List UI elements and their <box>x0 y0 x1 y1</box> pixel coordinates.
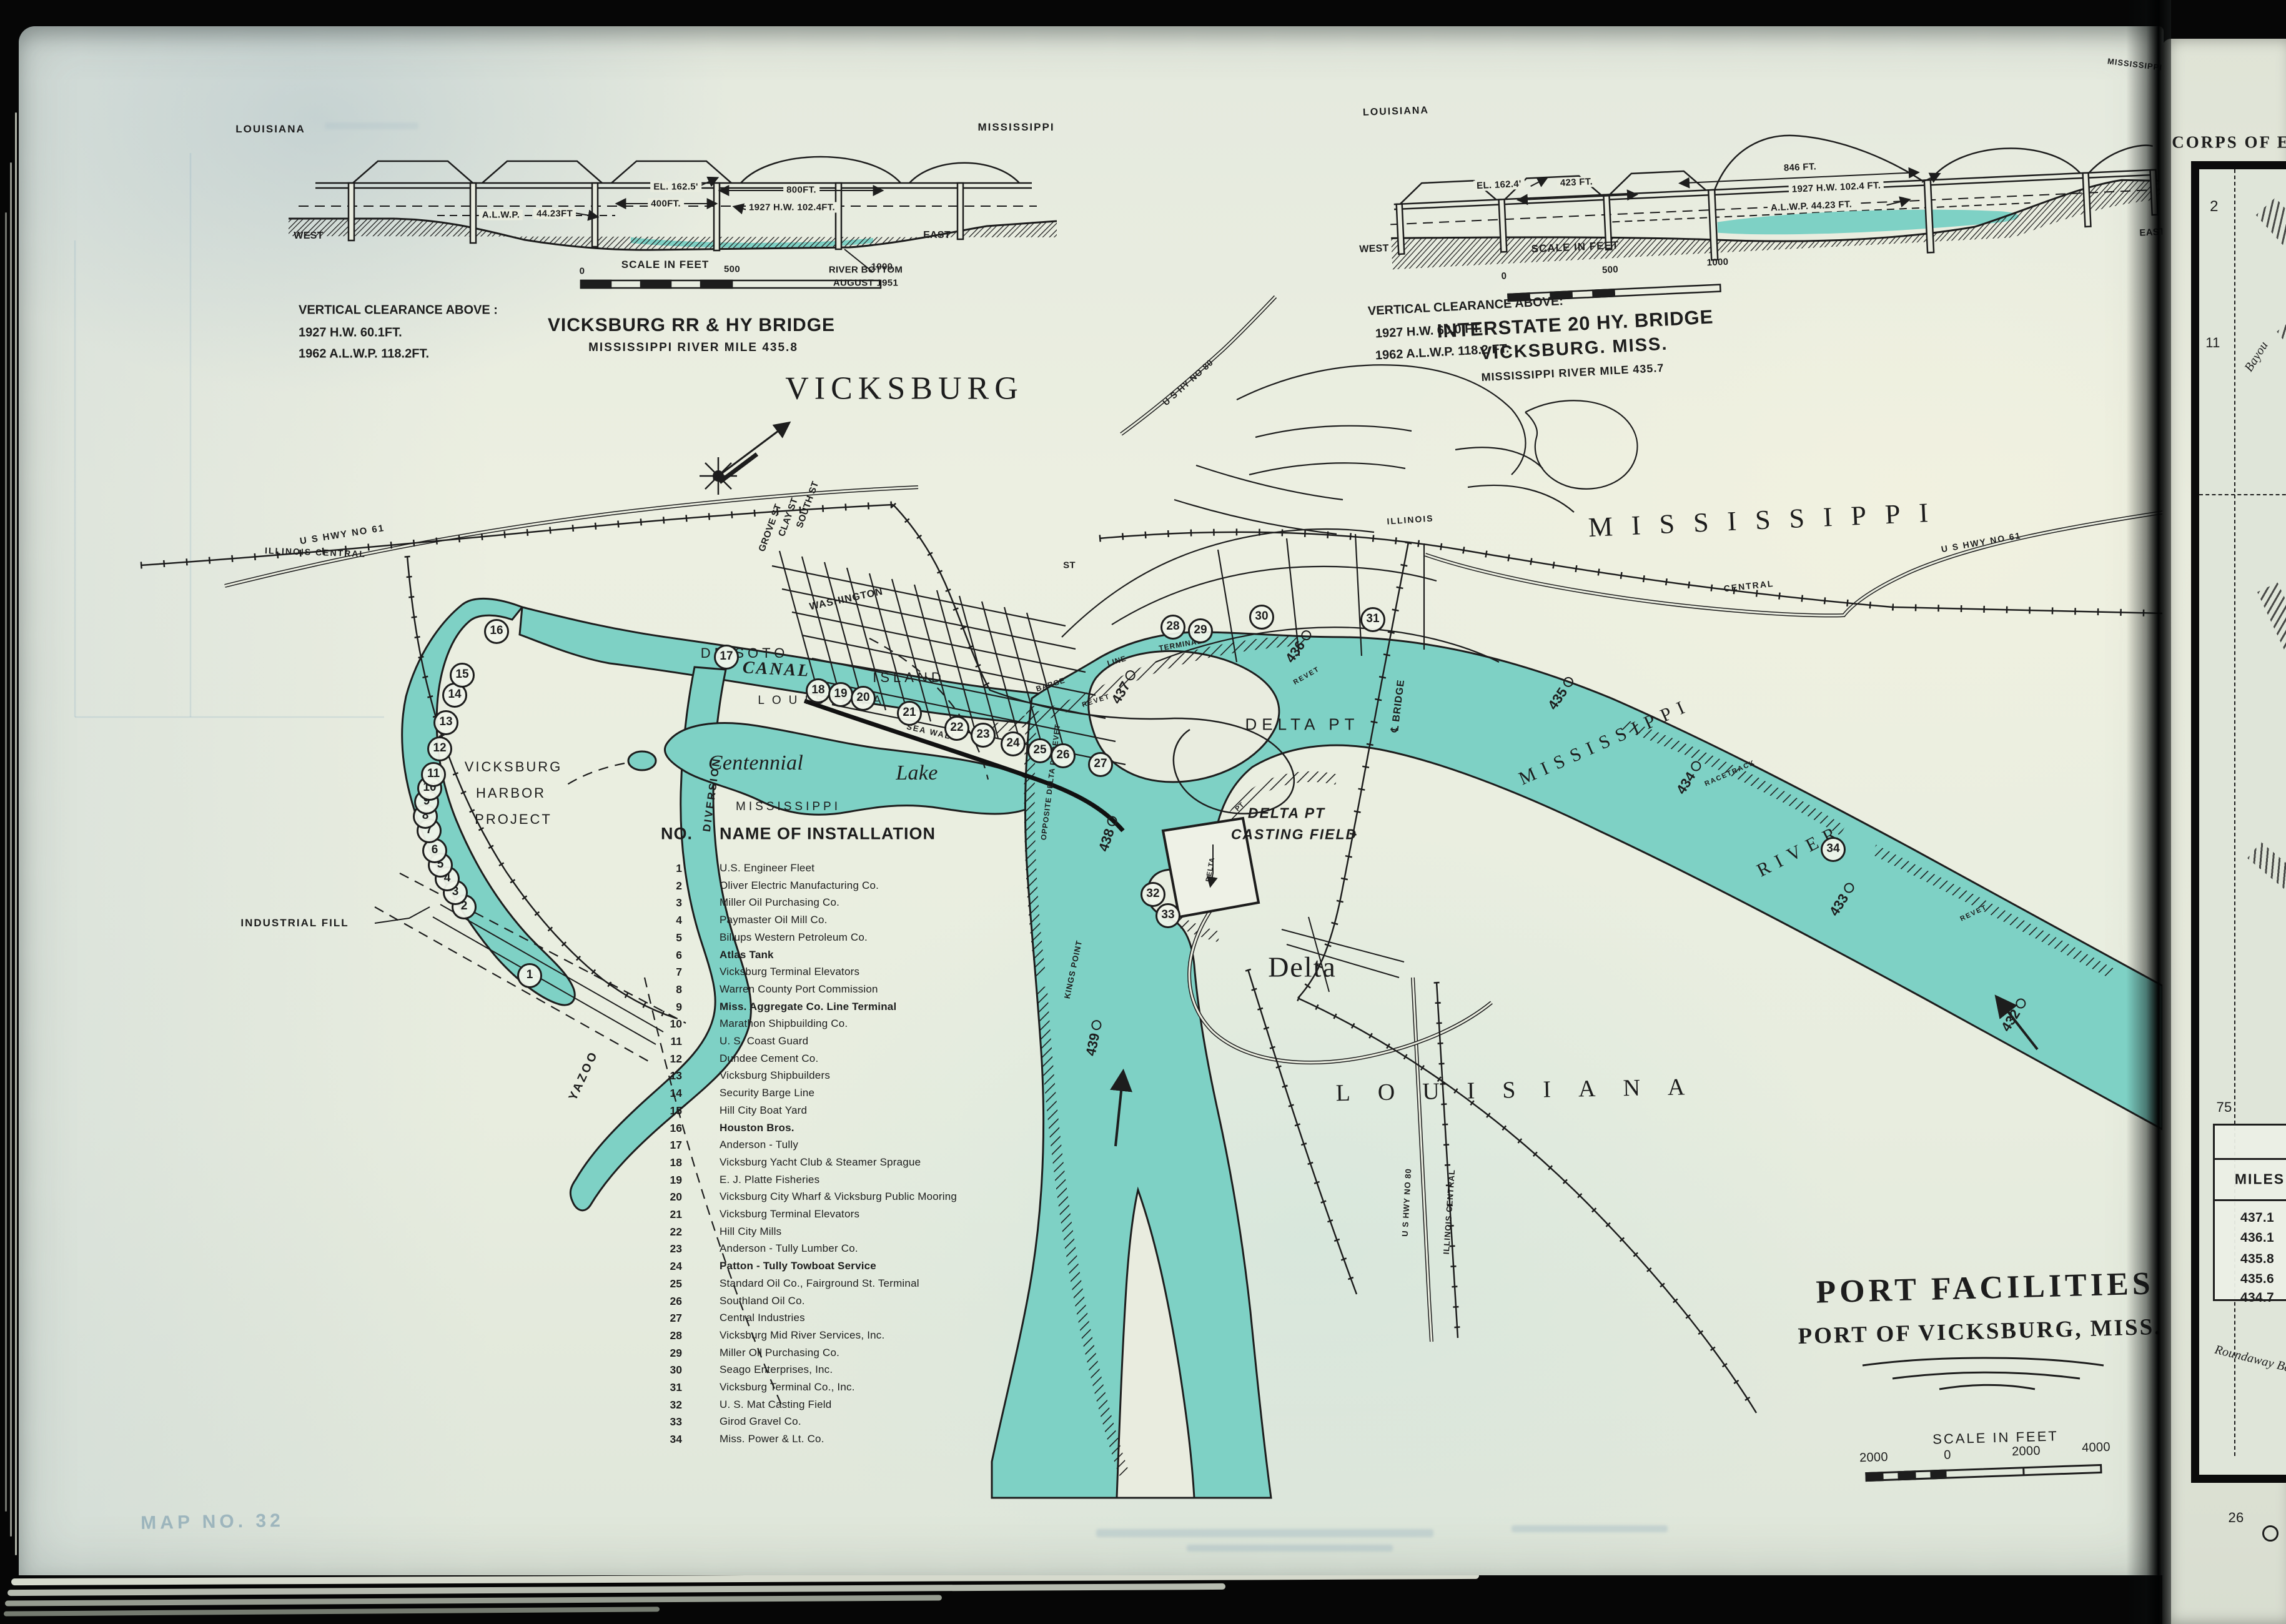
installation-name: Marathon Shipbuilding Co. <box>720 1017 848 1030</box>
scale-500-right: 500 <box>1602 264 1619 275</box>
installation-row-26: 26Southland Oil Co. <box>650 1295 1212 1311</box>
installation-marker-25: 25 <box>1027 738 1052 763</box>
installation-name: Vicksburg Mid River Services, Inc. <box>720 1329 884 1342</box>
installation-marker-30: 30 <box>1249 605 1274 630</box>
installation-marker-34: 34 <box>1821 837 1846 862</box>
installation-row-6: 6Atlas Tank <box>650 949 1212 965</box>
page-stack-edge <box>15 112 17 1555</box>
installation-row-25: 25Standard Oil Co., Fairground St. Termi… <box>650 1277 1212 1294</box>
installation-row-31: 31Vicksburg Terminal Co., Inc. <box>650 1381 1212 1397</box>
installation-name: Seago Enterprises, Inc. <box>720 1364 833 1376</box>
installation-row-34: 34Miss. Power & Lt. Co. <box>650 1433 1212 1449</box>
installation-marker-24: 24 <box>1001 731 1026 756</box>
ghost-text-bar <box>325 122 418 129</box>
installation-row-28: 28Vicksburg Mid River Services, Inc. <box>650 1329 1212 1345</box>
river-hatch <box>2256 197 2286 317</box>
page-gutter-shadow <box>2126 0 2171 1624</box>
installation-number: 25 <box>650 1277 682 1290</box>
installation-row-3: 3Miller Oil Purchasing Co. <box>650 896 1212 913</box>
installation-name: Miller Oil Purchasing Co. <box>720 1347 839 1359</box>
state-label-mississippi-left: MISSISSIPPI <box>977 121 1054 134</box>
installation-number: 14 <box>650 1087 682 1100</box>
scale-title-left: SCALE IN FEET <box>621 259 710 271</box>
installation-row-33: 33Girod Gravel Co. <box>650 1415 1212 1432</box>
miles-table-header: MILES <box>2235 1171 2285 1188</box>
installation-row-22: 22Hill City Mills <box>650 1225 1212 1242</box>
installation-row-2: 2Oliver Electric Manufacturing Co. <box>650 879 1212 896</box>
installation-number: 18 <box>650 1156 682 1169</box>
installation-row-8: 8Warren County Port Commission <box>650 983 1212 999</box>
installation-name: U. S. Coast Guard <box>720 1035 808 1047</box>
grid-number-11: 11 <box>2205 335 2220 351</box>
rr-bridge-subtitle: MISSISSIPPI RIVER MILE 435.8 <box>588 341 798 355</box>
clearance-title-left: VERTICAL CLEARANCE ABOVE : <box>299 304 498 318</box>
river-hatch <box>2277 316 2286 460</box>
installation-name: Miss. Aggregate Co. Line Terminal <box>720 1001 896 1013</box>
installation-number: 15 <box>650 1104 682 1117</box>
mississippi-small-label: MISSISSIPPI <box>736 800 841 814</box>
installation-marker-12: 12 <box>427 736 452 761</box>
installation-row-20: 20Vicksburg City Wharf & Vicksburg Publi… <box>650 1191 1212 1207</box>
installation-marker-23: 23 <box>971 723 996 748</box>
span-846-label: 846 FT. <box>1781 161 1820 174</box>
city-sprawl <box>1062 365 1637 662</box>
installation-row-24: 24Patton - Tully Towboat Service <box>650 1260 1212 1276</box>
installation-number: 21 <box>650 1208 682 1221</box>
casting-field-label-2: CASTING FIELD <box>1231 826 1357 843</box>
installation-number: 20 <box>650 1191 682 1204</box>
installation-marker-26: 26 <box>1051 743 1076 768</box>
installation-marker-22: 22 <box>944 716 969 741</box>
industrial-fill-label: INDUSTRIAL FILL <box>240 917 349 929</box>
installation-row-11: 11U. S. Coast Guard <box>650 1035 1212 1051</box>
next-page-map-frame: 2 1 11 Bayou 75 MILES 437.1 436.1 435.8 … <box>2191 161 2286 1483</box>
compass-west-right: WEST <box>1359 243 1389 255</box>
installation-marker-32: 32 <box>1141 882 1165 907</box>
alwp-label: A.L.W.P. <box>479 210 523 220</box>
scale-0-right: 0 <box>1501 270 1507 281</box>
tb-scale-2000l: 2000 <box>1859 1450 1888 1466</box>
harbor-project-label-3: PROJECT <box>475 811 552 828</box>
installation-name: Miss. Power & Lt. Co. <box>720 1433 824 1445</box>
grid-number-2: 2 <box>2210 198 2219 215</box>
clearance-1927-left: 1927 H.W. 60.1FT. <box>299 326 402 340</box>
next-page-fragment: CORPS OF E 2 1 11 Bayou 75 MILES 437.1 <box>2162 39 2286 1624</box>
installation-number: 17 <box>650 1139 682 1152</box>
installation-number: 23 <box>650 1242 682 1255</box>
installation-number: 6 <box>650 949 682 962</box>
harbor-project-label-2: HARBOR <box>476 785 546 801</box>
ghost-map-number: MAP NO. 32 <box>141 1510 284 1534</box>
clearance-1962-left: 1962 A.L.W.P. 118.2FT. <box>299 347 429 362</box>
installation-marker-28: 28 <box>1160 615 1185 640</box>
installation-number: 4 <box>650 914 682 927</box>
st-label: ST <box>1063 560 1076 571</box>
installation-number: 2 <box>650 879 682 893</box>
island-label: ISLAND <box>873 670 944 686</box>
compass-west-left: WEST <box>294 230 323 242</box>
installation-row-13: 13Vicksburg Shipbuilders <box>650 1069 1212 1086</box>
installation-name: Patton - Tully Towboat Service <box>720 1260 876 1272</box>
highwater-label: 1927 H.W. 102.4FT. <box>746 202 838 213</box>
installation-name: Anderson - Tully <box>720 1139 798 1151</box>
delta-pt-label: DELTA PT <box>1245 715 1360 735</box>
casting-field-label-1: DELTA PT <box>1248 805 1325 822</box>
delta-town-label: Delta <box>1268 951 1337 984</box>
page-stack-edge <box>10 162 12 1537</box>
span-400-label: 400FT. <box>648 199 684 209</box>
atlas-page: LOUISIANA MISSISSIPPI WEST EAST EL. 162.… <box>19 26 2164 1575</box>
installation-row-10: 10Marathon Shipbuilding Co. <box>650 1017 1212 1034</box>
installation-name: E. J. Platte Fisheries <box>720 1174 819 1186</box>
map-symbol-circle <box>2262 1525 2279 1542</box>
installation-number: 31 <box>650 1381 682 1394</box>
installation-number: 19 <box>650 1174 682 1187</box>
river-bottom-date: AUGUST 1951 <box>833 278 898 289</box>
installation-name: Vicksburg Terminal Elevators <box>720 966 859 978</box>
installation-name: Central Industries <box>720 1312 805 1324</box>
installation-row-14: 14Security Barge Line <box>650 1087 1212 1103</box>
installation-number: 11 <box>650 1035 682 1048</box>
installation-marker-17: 17 <box>714 645 739 670</box>
installation-name: Standard Oil Co., Fairground St. Termina… <box>720 1277 919 1290</box>
installation-row-23: 23Anderson - Tully Lumber Co. <box>650 1242 1212 1259</box>
installation-name: Southland Oil Co. <box>720 1295 805 1307</box>
installation-row-19: 19E. J. Platte Fisheries <box>650 1174 1212 1190</box>
grid-dash-line <box>2199 494 2286 495</box>
page-stack-edge <box>5 212 7 1512</box>
miles-value: 434.7 <box>2240 1290 2274 1305</box>
page-stack-edge <box>5 1595 942 1606</box>
installation-number: 24 <box>650 1260 682 1273</box>
roundaway-bayou-label: Roundaway Ba <box>2213 1343 2286 1376</box>
installation-row-4: 4Paymaster Oil Mill Co. <box>650 914 1212 930</box>
north-arrow <box>700 423 788 495</box>
installation-row-27: 27Central Industries <box>650 1312 1212 1328</box>
scale-1000-left: 1000 <box>871 262 893 272</box>
installation-name: Vicksburg Yacht Club & Steamer Sprague <box>720 1156 921 1169</box>
installation-name: Girod Gravel Co. <box>720 1415 801 1428</box>
installation-name: Vicksburg Terminal Elevators <box>720 1208 859 1220</box>
installation-name: Houston Bros. <box>720 1122 794 1134</box>
miles-value: 435.6 <box>2240 1272 2274 1287</box>
miles-value: 435.8 <box>2240 1252 2274 1267</box>
ghost-text-bar <box>1512 1525 1668 1532</box>
installation-row-9: 9Miss. Aggregate Co. Line Terminal <box>650 1001 1212 1017</box>
installation-marker-18: 18 <box>806 678 831 703</box>
installation-marker-33: 33 <box>1155 903 1180 928</box>
miles-value: 437.1 <box>2240 1211 2274 1225</box>
installation-name: U.S. Engineer Fleet <box>720 862 814 874</box>
installation-marker-19: 19 <box>828 682 853 707</box>
installation-marker-31: 31 <box>1360 607 1385 632</box>
scale-0-left: 0 <box>580 266 585 277</box>
installation-name: Vicksburg City Wharf & Vicksburg Public … <box>720 1191 957 1203</box>
installation-name: Vicksburg Terminal Co., Inc. <box>720 1381 855 1394</box>
installation-number: 5 <box>650 931 682 944</box>
installation-marker-1: 1 <box>517 963 542 988</box>
installation-row-12: 12Dundee Cement Co. <box>650 1052 1212 1069</box>
installation-row-1: 1U.S. Engineer Fleet <box>650 862 1212 878</box>
installation-row-18: 18Vicksburg Yacht Club & Steamer Sprague <box>650 1156 1212 1172</box>
installation-marker-13: 13 <box>433 710 458 735</box>
installation-number: 22 <box>650 1225 682 1239</box>
installation-header-name: NAME OF INSTALLATION <box>720 824 936 844</box>
installation-number: 16 <box>650 1122 682 1135</box>
installation-name: U. S. Mat Casting Field <box>720 1399 831 1411</box>
installation-number: 27 <box>650 1312 682 1325</box>
ghost-text-bar <box>1096 1529 1433 1537</box>
installation-marker-21: 21 <box>897 701 922 726</box>
installation-name: Dundee Cement Co. <box>720 1052 818 1065</box>
installation-number: 3 <box>650 896 682 909</box>
installation-marker-27: 27 <box>1088 752 1113 777</box>
tb-scale-4000: 4000 <box>2082 1440 2110 1456</box>
span-800-label: 800FT. <box>783 185 819 196</box>
elevation-label: EL. 162.5' <box>650 182 701 192</box>
installation-number: 29 <box>650 1347 682 1360</box>
alwp-value: 44.23FT <box>533 209 576 219</box>
installation-number: 33 <box>650 1415 682 1428</box>
miles-value: 436.1 <box>2240 1230 2274 1245</box>
installation-marker-16: 16 <box>484 619 509 644</box>
state-label-louisiana-right: LOUISIANA <box>1363 105 1430 119</box>
installation-number: 9 <box>650 1001 682 1014</box>
scale-500-left: 500 <box>724 264 740 275</box>
installation-number: 1 <box>650 862 682 875</box>
installation-marker-15: 15 <box>450 663 475 688</box>
installation-name: Security Barge Line <box>720 1087 814 1099</box>
installation-marker-29: 29 <box>1188 618 1213 643</box>
installation-number: 28 <box>650 1329 682 1342</box>
installation-row-21: 21Vicksburg Terminal Elevators <box>650 1208 1212 1224</box>
state-label-louisiana-left: LOUISIANA <box>235 123 305 136</box>
installation-name: Atlas Tank <box>720 949 774 961</box>
installation-row-30: 30Seago Enterprises, Inc. <box>650 1364 1212 1380</box>
installation-number: 34 <box>650 1433 682 1446</box>
installation-number: 8 <box>650 983 682 996</box>
tb-scale-0: 0 <box>1944 1448 1951 1462</box>
installation-number: 13 <box>650 1069 682 1082</box>
installation-row-16: 16Houston Bros. <box>650 1122 1212 1138</box>
spot-number-26: 26 <box>2228 1510 2244 1526</box>
lake-label: Lake <box>896 761 938 785</box>
installation-name: Paymaster Oil Mill Co. <box>720 914 828 926</box>
miles-table: MILES 437.1 436.1 435.8 435.6 434.7 <box>2213 1124 2286 1301</box>
rr-bridge-title: VICKSBURG RR & HY BRIDGE <box>548 315 835 336</box>
book-photo: LOUISIANA MISSISSIPPI WEST EAST EL. 162.… <box>0 0 2286 1624</box>
scale-1000-right: 1000 <box>1706 257 1728 269</box>
installation-name: Hill City Boat Yard <box>720 1104 807 1117</box>
installation-row-15: 15Hill City Boat Yard <box>650 1104 1212 1121</box>
installation-number: 26 <box>650 1295 682 1308</box>
next-page-header: CORPS OF E <box>2172 133 2286 152</box>
installation-row-5: 5Billups Western Petroleum Co. <box>650 931 1212 948</box>
river-hatch <box>2247 842 2286 954</box>
ghost-text-bar <box>1187 1545 1393 1552</box>
installation-row-32: 32U. S. Mat Casting Field <box>650 1399 1212 1415</box>
span-423-label: 423 FT. <box>1557 176 1596 189</box>
installation-number: 30 <box>650 1364 682 1377</box>
installation-header-no: NO. <box>661 824 693 844</box>
page-stack-edge <box>7 1583 1225 1596</box>
tb-scale-2000r: 2000 <box>2012 1444 2041 1460</box>
installation-number: 10 <box>650 1017 682 1031</box>
installation-row-17: 17Anderson - Tully <box>650 1139 1212 1155</box>
installation-name: Vicksburg Shipbuilders <box>720 1069 830 1082</box>
installation-row-7: 7Vicksburg Terminal Elevators <box>650 966 1212 982</box>
installation-row-29: 29Miller Oil Purchasing Co. <box>650 1347 1212 1363</box>
installation-number: 7 <box>650 966 682 979</box>
installation-number: 32 <box>650 1399 682 1412</box>
installation-name: Oliver Electric Manufacturing Co. <box>720 879 879 892</box>
installation-marker-20: 20 <box>851 686 876 711</box>
spot-number-75: 75 <box>2216 1099 2232 1116</box>
installation-number: 12 <box>650 1052 682 1066</box>
page-stack-edge <box>4 1607 660 1616</box>
installation-name: Hill City Mills <box>720 1225 781 1238</box>
harbor-project-label-1: VICKSBURG <box>465 759 563 775</box>
city-title: VICKSBURG <box>785 370 1024 407</box>
installation-name: Warren County Port Commission <box>720 983 878 996</box>
installation-name: Anderson - Tully Lumber Co. <box>720 1242 858 1255</box>
bayou-label: Bayou <box>2242 339 2271 375</box>
river-hatch <box>2257 583 2286 728</box>
installation-name: Billups Western Petroleum Co. <box>720 931 868 944</box>
compass-east-left: EAST <box>923 230 951 241</box>
installation-marker-11: 11 <box>421 762 446 787</box>
installation-name: Miller Oil Purchasing Co. <box>720 896 839 909</box>
